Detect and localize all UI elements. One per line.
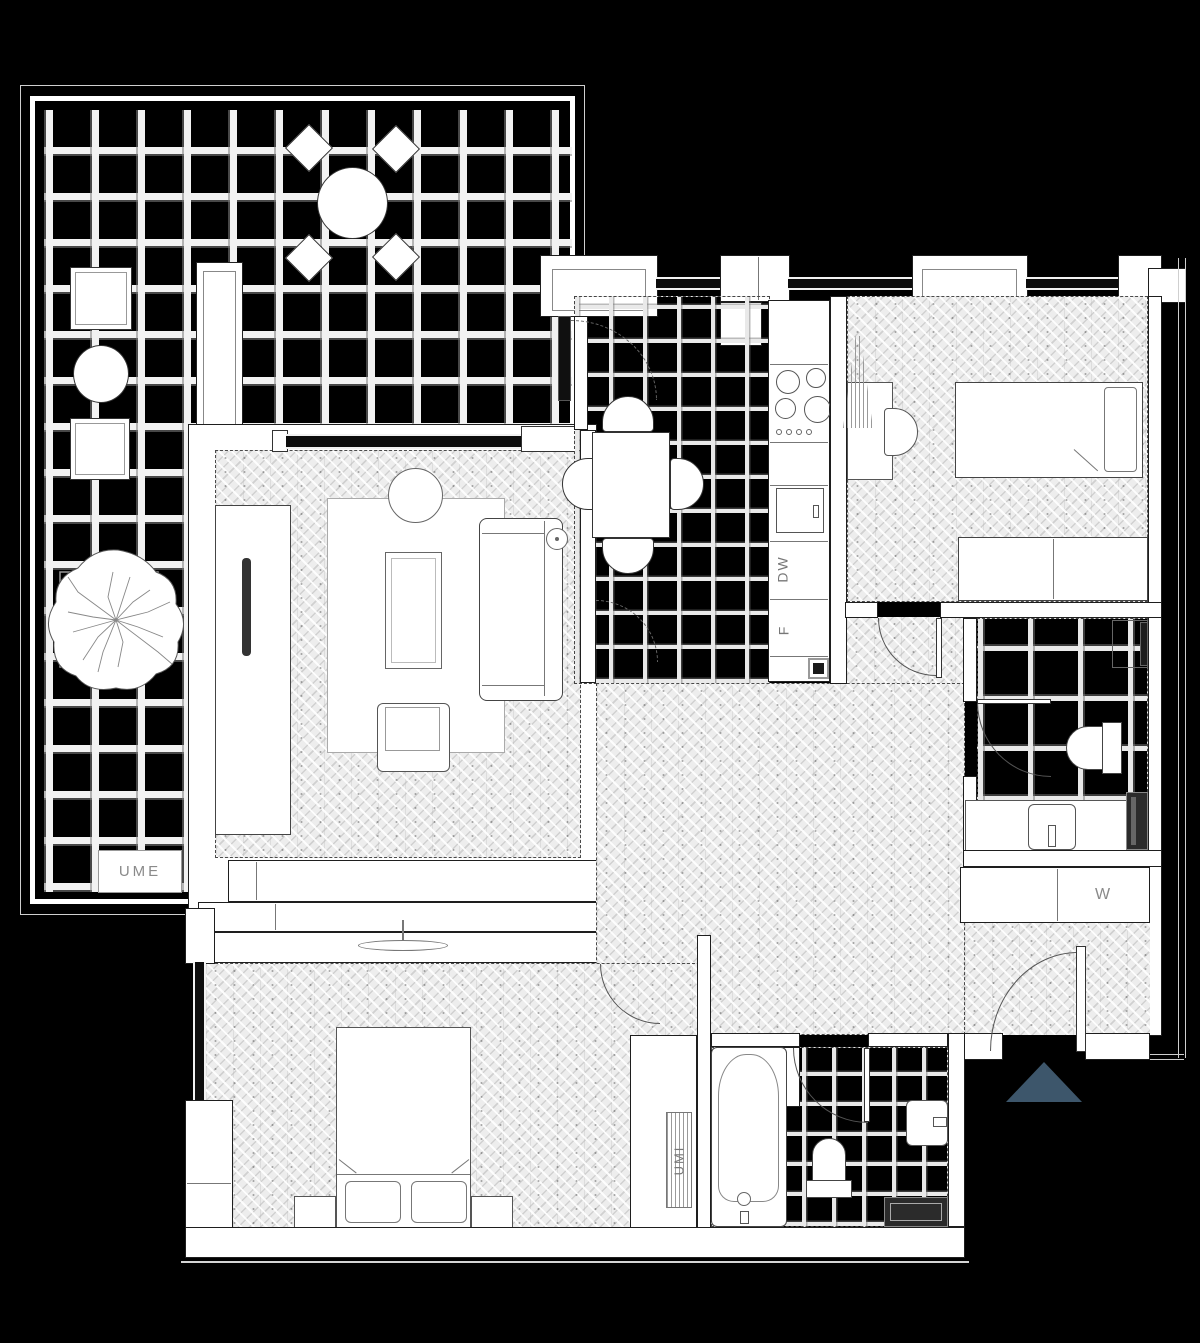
washer-label: W [1056, 867, 1150, 923]
double-bed-icon [336, 1027, 471, 1245]
bathroom1-right-wall [948, 1033, 965, 1227]
tv-icon [242, 558, 251, 656]
floor-plan: UME [0, 0, 1200, 1343]
radiator-icon [1140, 622, 1148, 666]
toilet-tank [806, 1180, 852, 1198]
media-console [215, 505, 291, 835]
floor-lamp-icon [546, 528, 568, 550]
planter-icon [70, 267, 132, 330]
counter-end-block [808, 658, 829, 679]
fridge-label: F [768, 608, 798, 652]
terrace-unit-label: UME [98, 850, 182, 893]
door-leaf [936, 618, 942, 678]
pendant-stem [402, 920, 404, 941]
bottom-outer-line [181, 1258, 969, 1263]
fridge-text: F [775, 625, 791, 636]
hallway-closet-row [198, 902, 658, 932]
coffee-table-icon [385, 552, 442, 669]
bathroom1-top-wall [711, 1033, 800, 1047]
sink-icon [1028, 804, 1076, 850]
bathroom2-bottom-wall [963, 850, 1162, 867]
bathroom1-left-wall [697, 935, 711, 1245]
window-glazing [788, 277, 914, 290]
bedroom2-wall-pier [185, 908, 215, 964]
towel-radiator-icon [884, 1197, 948, 1227]
toilet-icon [1066, 726, 1106, 770]
bedroom2-window [193, 962, 206, 1102]
window-glazing [1026, 277, 1120, 290]
bedroom2-left-wall [185, 1100, 233, 1228]
cooktop-icon [768, 363, 830, 440]
window-glazing [656, 277, 722, 290]
dishwasher-icon [776, 488, 824, 533]
terrace-sliding-door [286, 434, 523, 449]
pendant-light-icon [358, 940, 448, 951]
bathroom2-left-wall [963, 618, 977, 702]
bathroom1-top-wall [868, 1033, 948, 1047]
door-pocket [521, 426, 579, 452]
wall-pier [720, 255, 790, 302]
radiator-icon [1126, 792, 1148, 850]
toilet-icon [812, 1138, 846, 1186]
utility-unit-text: UMI [672, 1145, 687, 1175]
armchair-icon [377, 703, 450, 772]
bedroom1-bottom-wall [845, 602, 878, 618]
bedroom1-bottom-wall [940, 602, 1162, 618]
outdoor-table-icon [317, 167, 388, 239]
wardrobe-icon [958, 537, 1148, 601]
right-outer-line [1178, 258, 1186, 1058]
bathtub-icon [711, 1047, 787, 1227]
entry-door-leaf [1076, 946, 1086, 1052]
round-planter-icon [73, 345, 129, 403]
dishwasher-text: DW [775, 555, 791, 582]
side-table-icon [388, 468, 443, 523]
sink-icon [906, 1100, 948, 1146]
dishwasher-label: DW [768, 543, 798, 595]
entry-wall [1085, 1033, 1150, 1060]
toilet-tank [1102, 722, 1122, 774]
tree-icon [38, 542, 198, 702]
right-exterior-wall [1148, 296, 1162, 1036]
utility-unit: UMI [666, 1112, 692, 1208]
kitchen-bedroom1-wall [830, 296, 847, 684]
bottom-exterior-wall [185, 1227, 965, 1258]
entrance-arrow-icon [1006, 1062, 1082, 1102]
planter-icon [70, 418, 130, 480]
terrace-unit-text: UME [119, 863, 161, 880]
washer-text: W [1095, 886, 1111, 904]
door-leaf [864, 1048, 870, 1122]
dining-table-icon [592, 432, 670, 538]
bed-icon [955, 382, 1143, 478]
open-door-leaf [558, 316, 571, 401]
door-leaf [977, 699, 1051, 704]
